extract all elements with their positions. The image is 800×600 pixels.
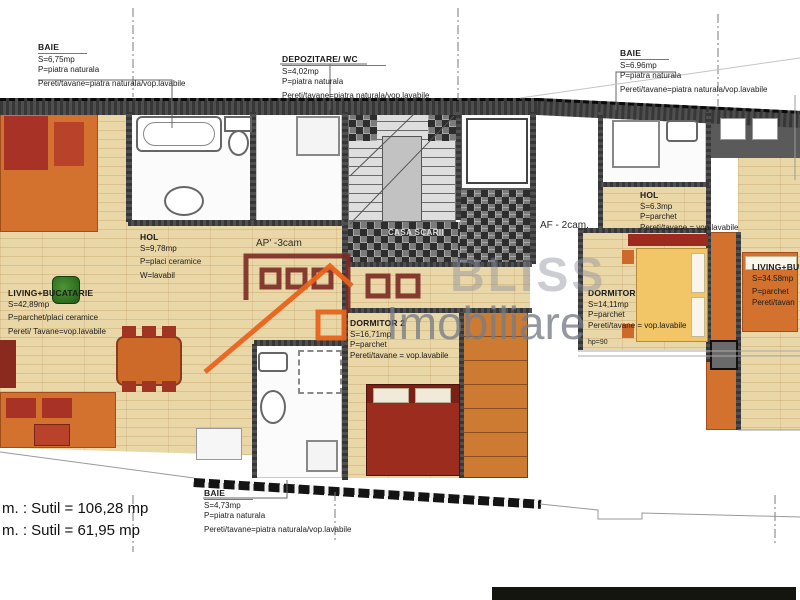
- watermark-brand-bottom: Imobiliare: [386, 296, 585, 350]
- floor-plan: BAIE S=6,75mp P=piatra naturala Pereti/t…: [0, 0, 800, 600]
- watermark-brand-top: BLISS: [450, 248, 606, 303]
